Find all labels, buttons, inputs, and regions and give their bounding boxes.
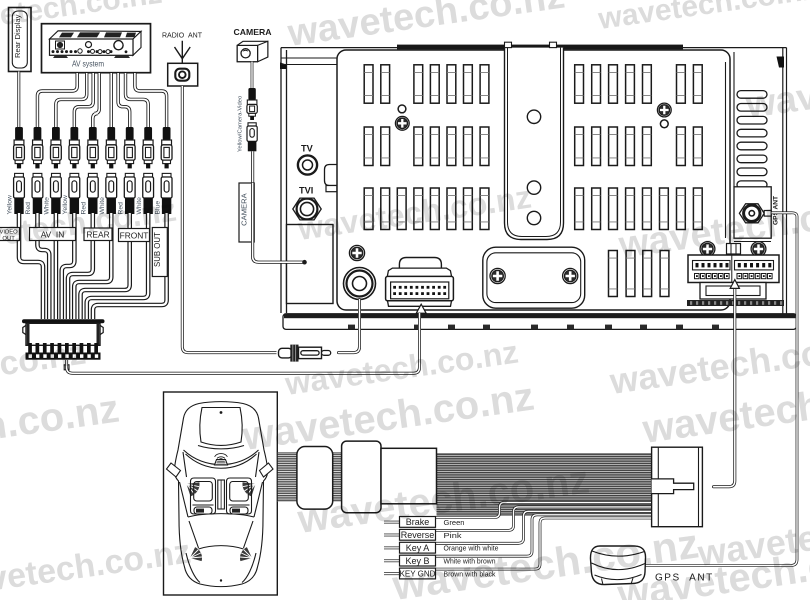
svg-text:wavetech.co.nz: wavetech.co.nz bbox=[284, 0, 567, 55]
svg-text:wavetech.co.nz: wavetech.co.nz bbox=[295, 179, 533, 247]
svg-text:wavetech.co.nz: wavetech.co.nz bbox=[0, 192, 178, 260]
svg-text:wavetech.co.nz: wavetech.co.nz bbox=[0, 0, 164, 40]
svg-text:wavetech.co.nz: wavetech.co.nz bbox=[0, 387, 122, 472]
svg-text:wavetech.co.nz: wavetech.co.nz bbox=[0, 533, 193, 600]
svg-text:wavetech.co.nz: wavetech.co.nz bbox=[615, 187, 810, 268]
svg-text:wavetech.co.nz: wavetech.co.nz bbox=[294, 458, 592, 543]
svg-text:wavetech.co.nz: wavetech.co.nz bbox=[595, 0, 810, 36]
svg-text:wavetech.co.nz: wavetech.co.nz bbox=[742, 47, 810, 128]
